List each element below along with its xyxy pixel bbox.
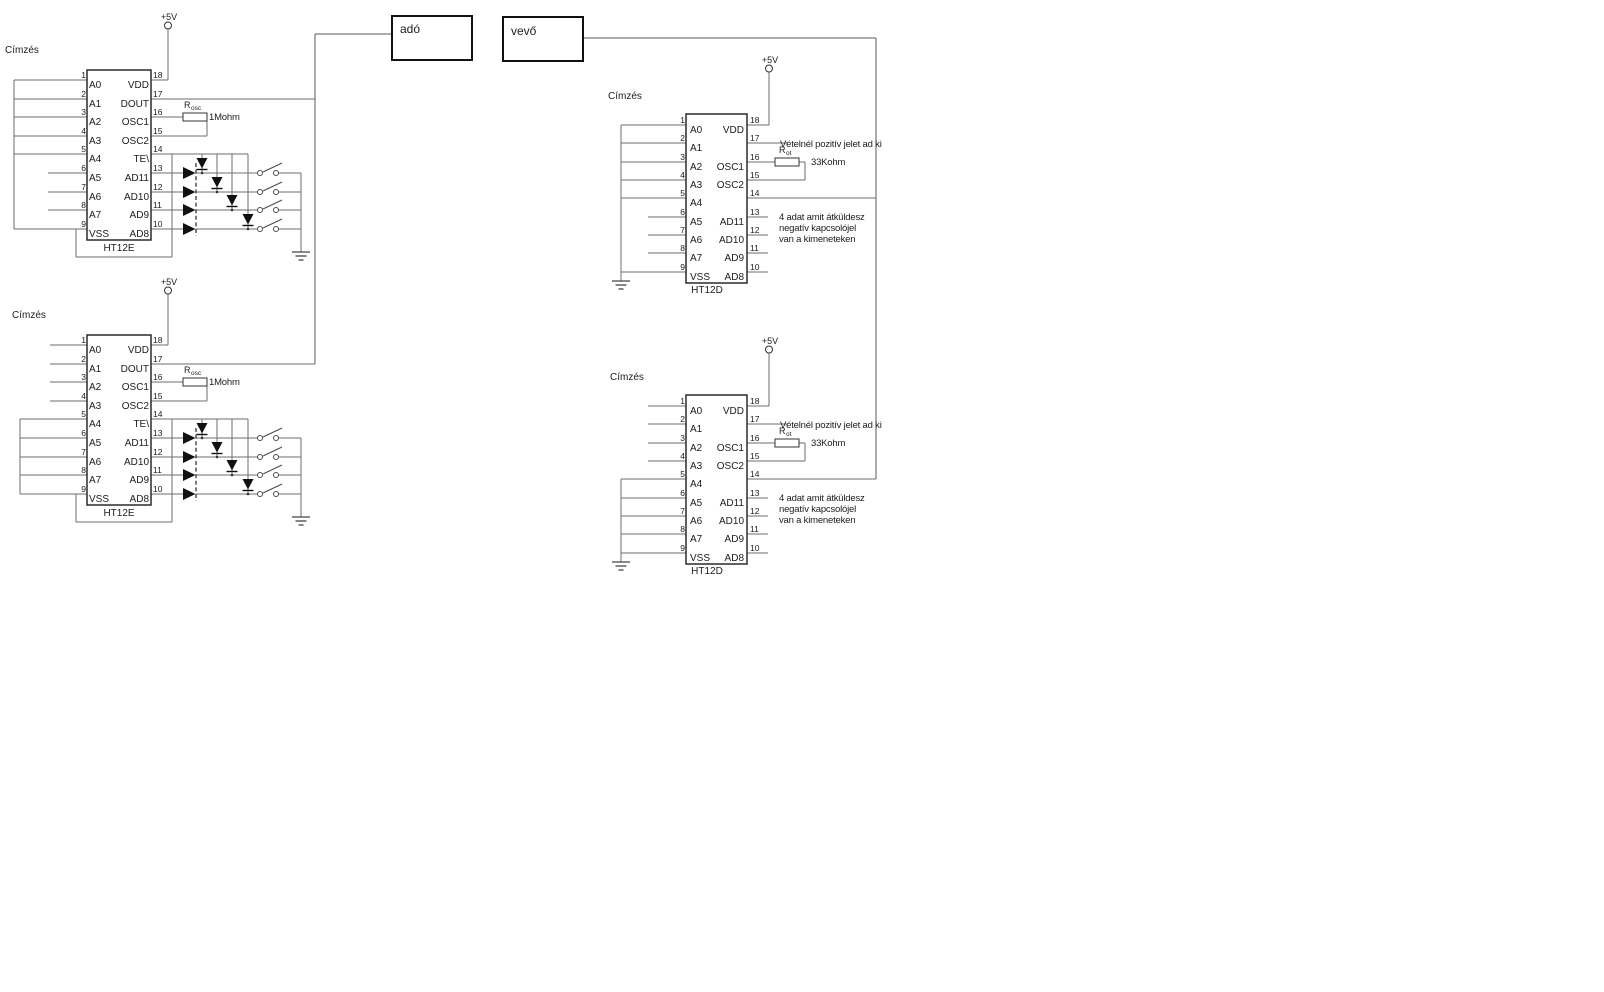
pin-number: 16 (750, 152, 760, 162)
pin-number: 1 (81, 335, 86, 345)
pin-name: A0 (690, 406, 703, 417)
pin-number: 12 (750, 506, 760, 516)
pin-name: AD9 (130, 210, 150, 221)
pin-name: AD11 (720, 217, 745, 228)
pin-name: OSC1 (122, 382, 150, 393)
power-label: +5V (762, 336, 778, 346)
pin-name: AD11 (125, 173, 150, 184)
pin-name: AD11 (720, 498, 745, 509)
addressing-label: Címzés (5, 45, 39, 56)
pin-number: 2 (680, 133, 685, 143)
schematic-canvas: adó vevő Címzés (0, 0, 1604, 992)
resistor-ref-sub: ot (786, 150, 792, 157)
pin-number: 17 (750, 414, 760, 424)
pin-name: OSC1 (717, 162, 745, 173)
addressing-label: Címzés (610, 372, 644, 383)
pin-name: A2 (89, 382, 102, 393)
pin-number: 8 (680, 243, 685, 253)
resistor-ref-sub: ot (786, 431, 792, 438)
pin-number: 16 (750, 433, 760, 443)
pin-name: A4 (690, 198, 703, 209)
pin-number: 6 (81, 428, 86, 438)
pin-number: 5 (680, 469, 685, 479)
pulldown-diode-icons (197, 158, 254, 230)
pin-name: OSC1 (717, 443, 745, 454)
pin-number: 15 (153, 126, 163, 136)
pin-number: 3 (81, 372, 86, 382)
pin-name: AD9 (725, 253, 745, 264)
chip-label: HT12D (691, 566, 723, 577)
pin-name: A0 (89, 80, 102, 91)
pin-name: AD9 (130, 475, 150, 486)
ground-icon (292, 252, 310, 260)
pin-number: 15 (750, 451, 760, 461)
pin-number: 18 (153, 70, 163, 80)
pin-number: 17 (153, 354, 163, 364)
data-note: 4 adat amit átküldesz negatív kapcsolóje… (779, 493, 865, 526)
pin-name: TE\ (133, 154, 149, 165)
chip-label: HT12E (103, 243, 134, 254)
pin-name: OSC2 (122, 136, 150, 147)
pin-number: 14 (750, 469, 760, 479)
pin-name: A0 (89, 345, 102, 356)
resistor-ref-sub: osc (191, 105, 202, 112)
pin-number: 10 (750, 543, 760, 553)
resistor-icon: R osc 1Mohm (183, 100, 240, 123)
pin-name: A5 (690, 498, 703, 509)
pin-number: 2 (81, 89, 86, 99)
pin-number: 1 (680, 115, 685, 125)
pin-name: A0 (690, 125, 703, 136)
pin-name: A4 (89, 419, 102, 430)
ground-icon (292, 517, 310, 525)
resistor-ref: R (184, 365, 191, 375)
series-diode-icons (183, 163, 196, 236)
pin-number: 2 (81, 354, 86, 364)
switch-icons (258, 428, 283, 497)
pin-number: 10 (153, 219, 163, 229)
resistor-icon: R osc 1Mohm (183, 365, 240, 388)
pin-name: A5 (89, 173, 102, 184)
pin-number: 8 (680, 524, 685, 534)
pin-name: OSC2 (717, 461, 745, 472)
pin-number: 15 (750, 170, 760, 180)
pin-number: 1 (81, 70, 86, 80)
pin-number: 16 (153, 372, 163, 382)
pin-number: 9 (680, 543, 685, 553)
pin-number: 6 (81, 163, 86, 173)
pin-number: 7 (680, 225, 685, 235)
pin-number: 4 (680, 170, 685, 180)
pin-number: 8 (81, 465, 86, 475)
pin-name: VSS (690, 272, 710, 283)
pin-name: VSS (89, 494, 109, 505)
data-note-line: negatív kapcsolójel (779, 504, 856, 515)
pin-name: VDD (128, 345, 149, 356)
pin-number: 18 (750, 115, 760, 125)
pin-number: 14 (153, 409, 163, 419)
interconnect-wires (315, 34, 876, 479)
pin-name: A7 (89, 210, 102, 221)
pin-number: 17 (750, 133, 760, 143)
pin-number: 4 (680, 451, 685, 461)
pin-number: 9 (81, 484, 86, 494)
pin-name: A2 (89, 117, 102, 128)
pulldown-diode-icons (197, 423, 254, 495)
pin-name: A3 (690, 180, 703, 191)
pin-number: 3 (81, 107, 86, 117)
pin-number: 5 (680, 188, 685, 198)
pin-name: AD10 (719, 516, 744, 527)
resistor-ref: R (184, 100, 191, 110)
pin-name: AD11 (125, 438, 150, 449)
pin-name: VDD (723, 125, 744, 136)
power-label: +5V (161, 12, 177, 22)
pin-number: 13 (750, 488, 760, 498)
power-label: +5V (762, 55, 778, 65)
data-note: 4 adat amit átküldesz negatív kapcsolóje… (779, 212, 865, 245)
pin-number: 5 (81, 409, 86, 419)
pin-name: A6 (690, 235, 703, 246)
resistor-value: 1Mohm (209, 377, 240, 388)
pin-name: VSS (89, 229, 109, 240)
pin-name: TE\ (133, 419, 149, 430)
decoder-2: Címzés +5V (610, 336, 882, 577)
receiver-label: vevő (511, 24, 537, 38)
pin-name: AD10 (719, 235, 744, 246)
transmitter-label: adó (400, 22, 420, 36)
pin-number: 7 (680, 506, 685, 516)
pin-number: 4 (81, 391, 86, 401)
pin-name: OSC2 (717, 180, 745, 191)
pin-name: A7 (89, 475, 102, 486)
pin-name: OSC1 (122, 117, 150, 128)
pin-name: AD8 (725, 272, 745, 283)
data-note-line: 4 adat amit átküldesz (779, 493, 865, 504)
pin-number: 13 (153, 428, 163, 438)
switch-icons (258, 163, 283, 232)
pin-number: 3 (680, 433, 685, 443)
power-terminal-icon: +5V (762, 336, 778, 353)
ground-icon (612, 281, 630, 289)
pin-name: A5 (89, 438, 102, 449)
series-diode-icons (183, 428, 196, 501)
pin-name: A1 (690, 424, 703, 435)
pin-number: 17 (153, 89, 163, 99)
pin-name: DOUT (121, 99, 149, 110)
pin-name: AD8 (130, 494, 150, 505)
pin-name: A5 (690, 217, 703, 228)
decoder-1: Címzés +5V (608, 55, 882, 296)
pin-name: AD8 (725, 553, 745, 564)
pin-name: AD10 (124, 192, 149, 203)
pin-number: 12 (153, 447, 163, 457)
pin-number: 10 (750, 262, 760, 272)
pin-name: VDD (128, 80, 149, 91)
pin-number: 11 (750, 524, 759, 534)
pin-name: A4 (89, 154, 102, 165)
pin-number: 13 (750, 207, 760, 217)
pin-name: A3 (89, 401, 102, 412)
pin-name: A4 (690, 479, 703, 490)
pin-name: A3 (690, 461, 703, 472)
pin-number: 6 (680, 207, 685, 217)
pin-name: A7 (690, 253, 703, 264)
output-note: Vételnél pozitív jelet ad ki (780, 139, 882, 150)
decoder-2-wires (621, 353, 876, 562)
pin-name: A1 (690, 143, 703, 154)
addressing-label: Címzés (12, 310, 46, 321)
data-note-line: 4 adat amit átküldesz (779, 212, 865, 223)
pin-number: 12 (750, 225, 760, 235)
power-terminal-icon: +5V (161, 12, 177, 29)
pin-number: 6 (680, 488, 685, 498)
pin-number: 9 (81, 219, 86, 229)
pin-name: A2 (690, 443, 703, 454)
chip-label: HT12D (691, 285, 723, 296)
pin-name: A6 (690, 516, 703, 527)
pin-name: DOUT (121, 364, 149, 375)
data-note-line: negatív kapcsolójel (779, 223, 856, 234)
pin-number: 5 (81, 144, 86, 154)
pin-number: 16 (153, 107, 163, 117)
pin-name: A3 (89, 136, 102, 147)
resistor-value: 33Kohm (811, 157, 845, 168)
schematic-drawing: adó vevő Címzés (0, 0, 1604, 992)
encoder-2: Címzés (12, 277, 315, 525)
pin-name: A6 (89, 192, 102, 203)
chip-label: HT12E (103, 508, 134, 519)
encoder-2-wires (20, 294, 315, 522)
pin-number: 11 (750, 243, 759, 253)
pin-name: VSS (690, 553, 710, 564)
transmitter-box: adó (392, 16, 472, 60)
pin-name: A1 (89, 364, 102, 375)
resistor-value: 33Kohm (811, 438, 845, 449)
pin-number: 18 (153, 335, 163, 345)
pin-number: 3 (680, 152, 685, 162)
resistor-value: 1Mohm (209, 112, 240, 123)
pin-number: 4 (81, 126, 86, 136)
pin-number: 14 (750, 188, 760, 198)
pin-number: 10 (153, 484, 163, 494)
pin-name: VDD (723, 406, 744, 417)
power-terminal-icon: +5V (161, 277, 177, 294)
pin-number: 12 (153, 182, 163, 192)
data-note-line: van a kimeneteken (779, 515, 855, 526)
pin-name: A7 (690, 534, 703, 545)
pin-name: A6 (89, 457, 102, 468)
encoder-1-wires (14, 29, 315, 257)
pin-number: 7 (81, 447, 86, 457)
output-note: Vételnél pozitív jelet ad ki (780, 420, 882, 431)
ground-icon (612, 562, 630, 570)
receiver-box: vevő (503, 17, 583, 61)
pin-number: 8 (81, 200, 86, 210)
pin-number: 1 (680, 396, 685, 406)
pin-name: AD9 (725, 534, 745, 545)
pin-number: 2 (680, 414, 685, 424)
addressing-label: Címzés (608, 91, 642, 102)
pin-number: 11 (153, 200, 162, 210)
pin-name: A1 (89, 99, 102, 110)
pin-name: A2 (690, 162, 703, 173)
pin-name: AD8 (130, 229, 150, 240)
pin-number: 9 (680, 262, 685, 272)
power-terminal-icon: +5V (762, 55, 778, 72)
pin-number: 7 (81, 182, 86, 192)
power-label: +5V (161, 277, 177, 287)
decoder-1-wires (621, 72, 876, 281)
pin-name: OSC2 (122, 401, 150, 412)
encoder-1: Címzés (5, 12, 315, 260)
pin-number: 14 (153, 144, 163, 154)
pin-number: 11 (153, 465, 162, 475)
pin-number: 15 (153, 391, 163, 401)
pin-name: AD10 (124, 457, 149, 468)
data-note-line: van a kimeneteken (779, 234, 855, 245)
pin-number: 13 (153, 163, 163, 173)
resistor-ref-sub: osc (191, 370, 202, 377)
pin-number: 18 (750, 396, 760, 406)
